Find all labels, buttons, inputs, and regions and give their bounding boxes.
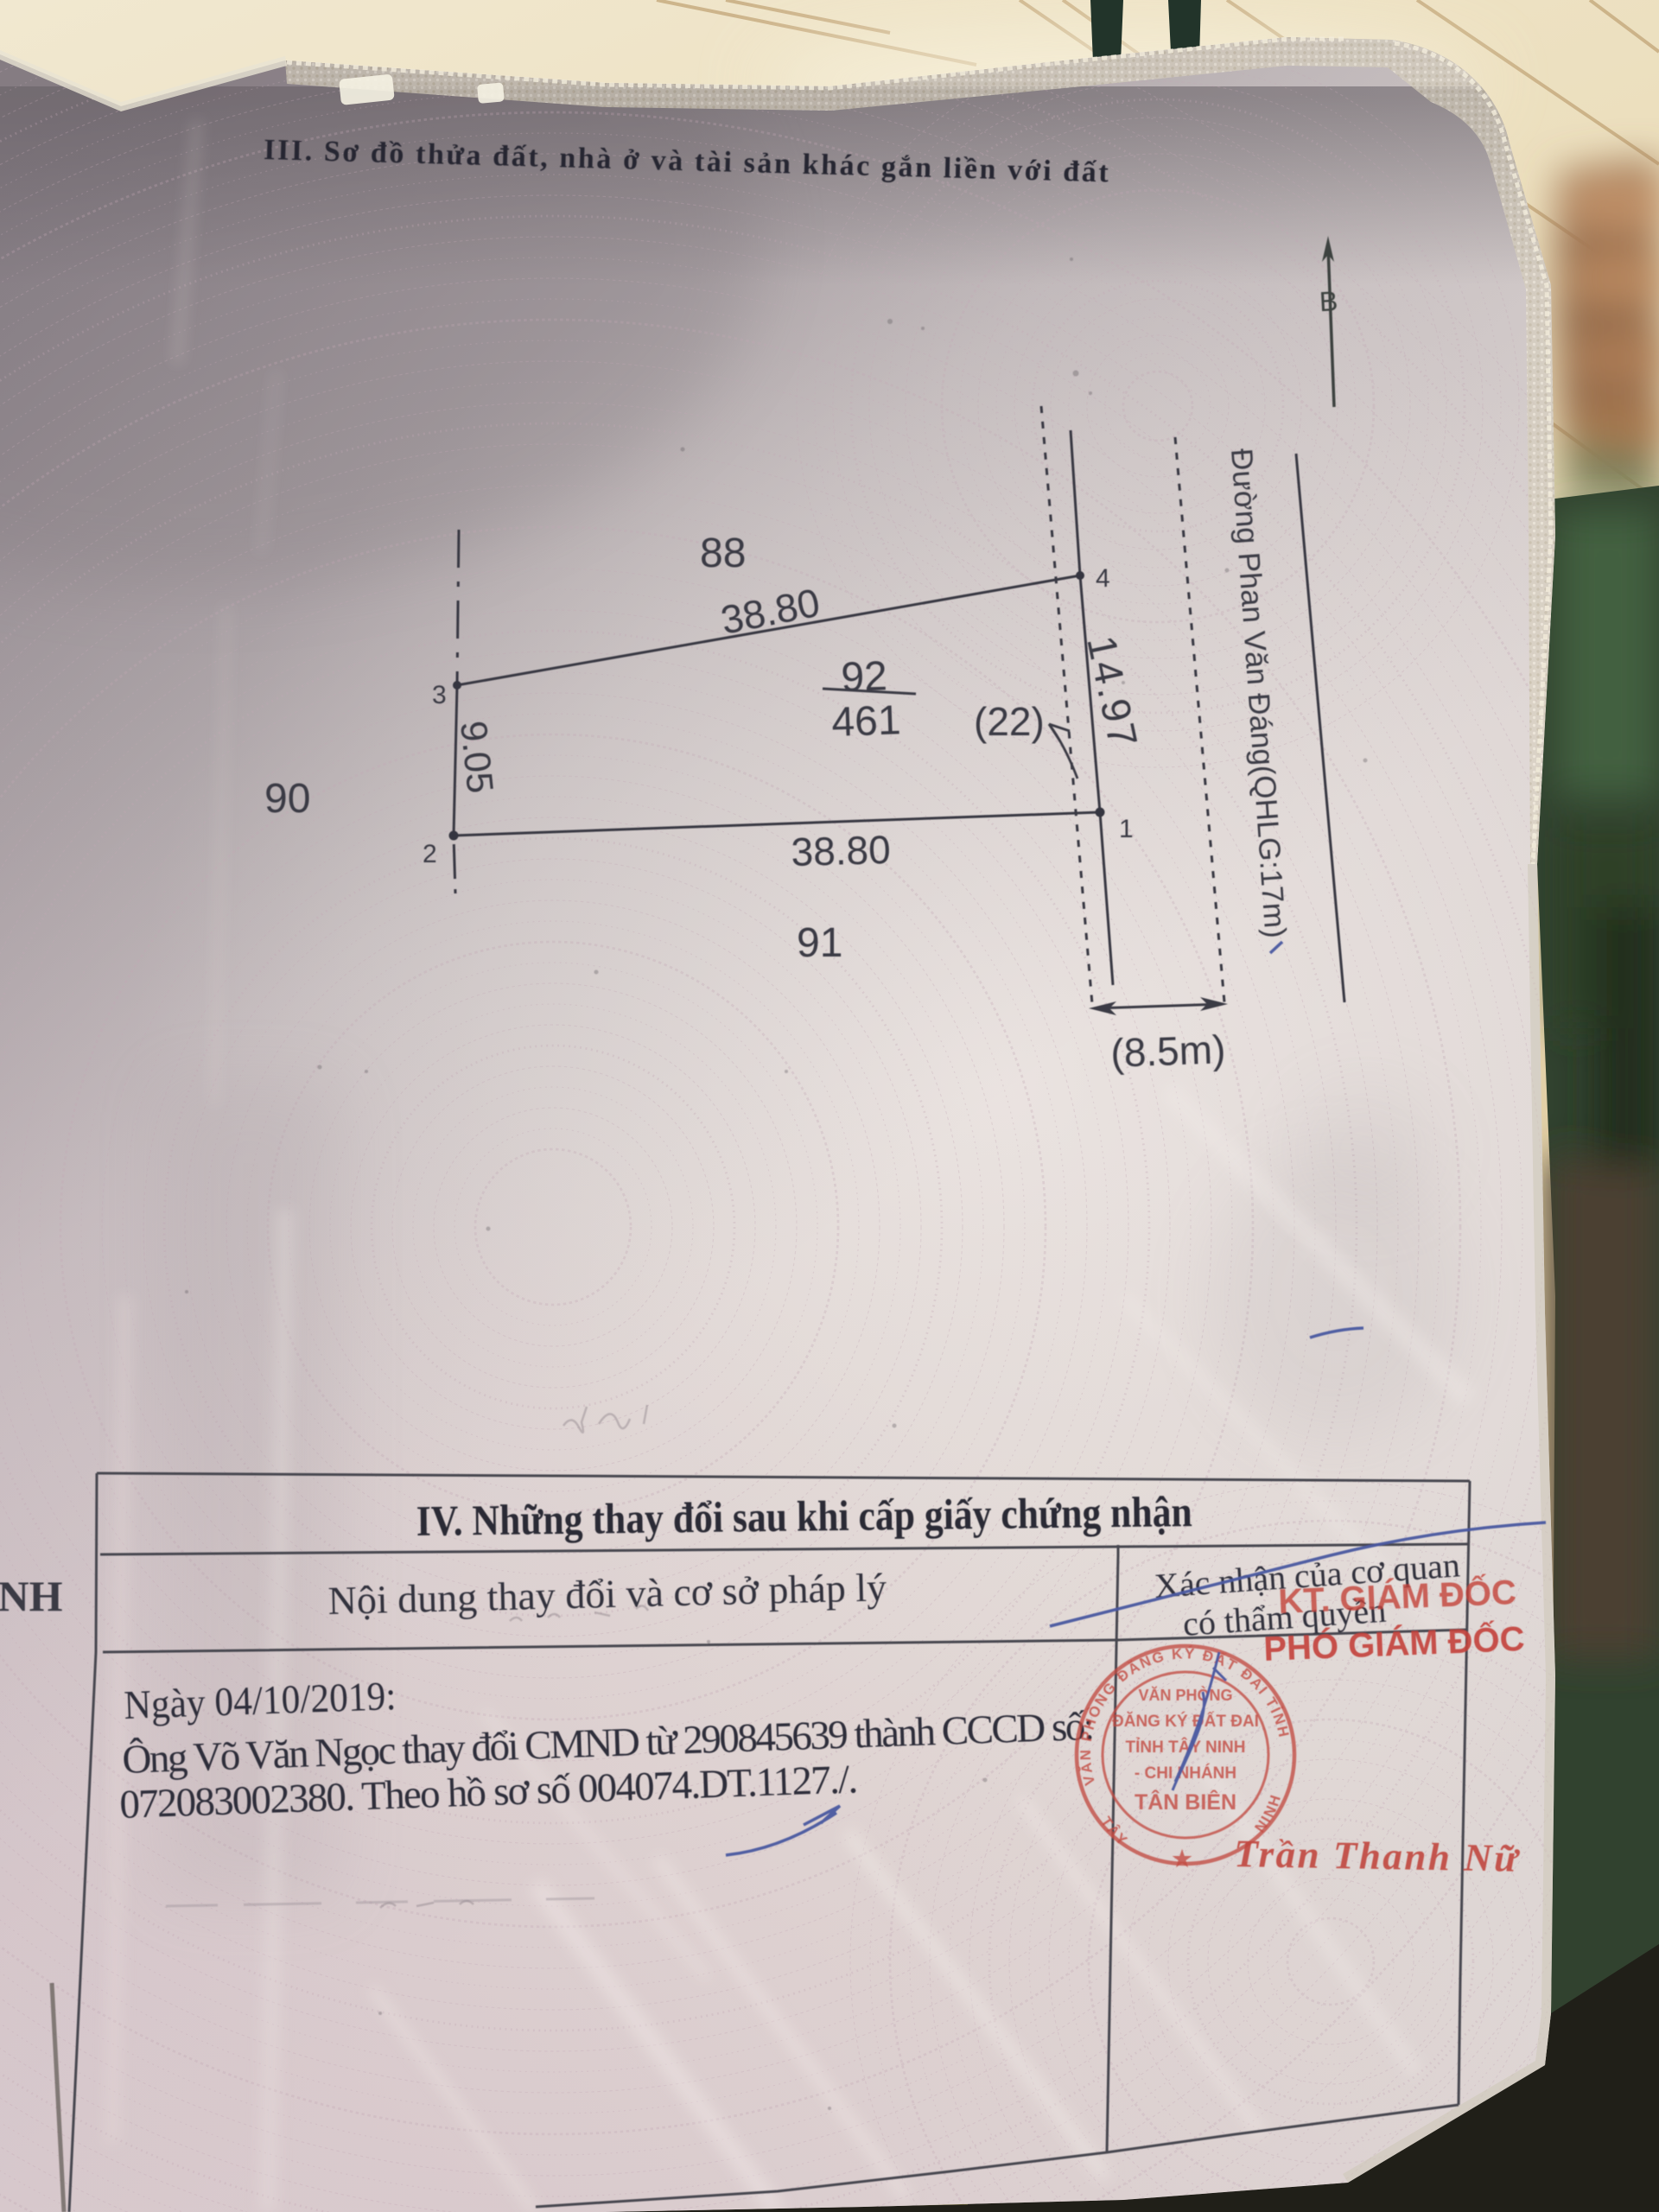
svg-text:4: 4: [1096, 564, 1110, 593]
svg-text:Trần Thanh Nữ: Trần Thanh Nữ: [1234, 1832, 1521, 1880]
svg-text:TÂN BIÊN: TÂN BIÊN: [1135, 1789, 1236, 1815]
svg-text:TỈNH TÂY NINH: TỈNH TÂY NINH: [1126, 1738, 1246, 1757]
svg-text:(8.5m): (8.5m): [1110, 1027, 1227, 1076]
svg-text:90: 90: [264, 776, 310, 822]
svg-text:92: 92: [841, 653, 888, 701]
svg-text:Ngày 04/10/2019:: Ngày 04/10/2019:: [124, 1674, 397, 1728]
svg-text:2: 2: [423, 840, 437, 868]
svg-text:38.80: 38.80: [791, 827, 891, 874]
svg-text:(22): (22): [974, 699, 1045, 744]
svg-text:461: 461: [831, 697, 902, 746]
svg-text:INH: INH: [0, 1572, 63, 1620]
svg-text:IV. Những thay đổi sau khi cấp: IV. Những thay đổi sau khi cấp giấy chứn…: [416, 1487, 1192, 1545]
svg-text:88: 88: [700, 531, 746, 576]
svg-text:★: ★: [1172, 1846, 1192, 1872]
svg-text:ĐĂNG KÝ ĐẤT ĐAI: ĐĂNG KÝ ĐẤT ĐAI: [1112, 1712, 1259, 1731]
svg-text:91: 91: [797, 920, 842, 966]
svg-text:1: 1: [1119, 815, 1134, 843]
svg-text:B: B: [1319, 285, 1338, 317]
svg-text:9.05: 9.05: [452, 719, 500, 795]
svg-text:3: 3: [432, 681, 447, 709]
svg-text:- CHI NHÁNH: - CHI NHÁNH: [1135, 1764, 1236, 1783]
svg-text:VĂN PHÒNG: VĂN PHÒNG: [1138, 1686, 1232, 1704]
